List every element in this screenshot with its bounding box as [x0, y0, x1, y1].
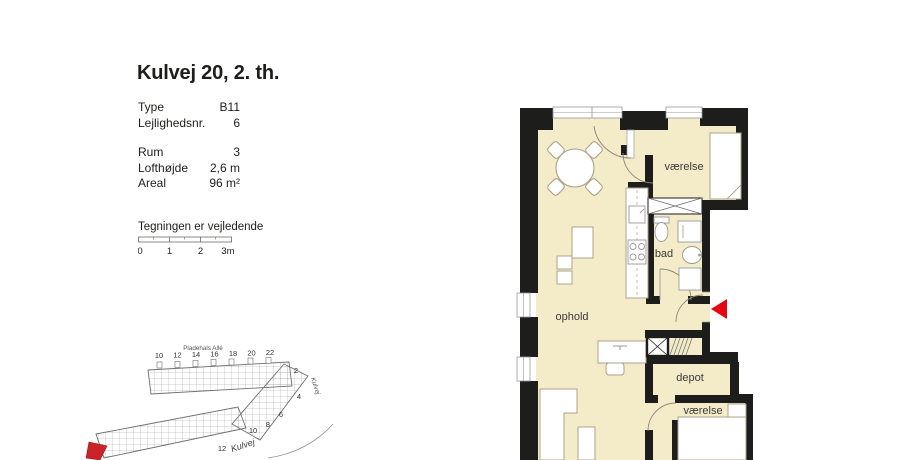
stool [557, 271, 572, 284]
room-label-bath: bad [655, 248, 673, 260]
page-title: Kulvej 20, 2. th. [137, 62, 279, 85]
apartment-details: Type B11 Lejlighedsnr. 6 Rum 3 Lofthøjde… [138, 100, 240, 192]
detail-label: Rum [138, 145, 163, 161]
house-number: 20 [247, 349, 255, 358]
wardrobe [648, 198, 702, 214]
street-label-kulvej-right: Kulvej [309, 377, 321, 397]
bedside-table [728, 404, 746, 417]
site-plan: Pladehals Allé Kulvej Kulvej 10 12 14 16… [85, 330, 337, 460]
detail-row-type: Type B11 [138, 100, 240, 116]
window [517, 357, 530, 381]
house-number: 22 [266, 348, 274, 357]
road-line [268, 424, 333, 458]
elevator [647, 337, 668, 356]
detail-value: 3 [233, 145, 240, 161]
disclaimer-text: Tegningen er vejledende [138, 221, 263, 233]
kitchen-sink [629, 206, 645, 223]
detail-label: Areal [138, 176, 166, 192]
entrance-arrow-icon [711, 299, 727, 319]
room-label-bedroom1: værelse [664, 161, 703, 173]
house-number: 16 [210, 350, 218, 359]
siteplan-house-numbers-top: 10 12 14 16 18 20 22 [155, 348, 274, 360]
window [666, 107, 702, 118]
scale-bar-body [139, 237, 232, 242]
detail-row-ceiling-height: Lofthøjde 2,6 m [138, 161, 240, 177]
toilet [654, 217, 669, 242]
scale-label-3m: 3m [221, 246, 234, 257]
bathroom-cabinet [678, 221, 701, 242]
house-number: 4 [297, 392, 301, 401]
floor-plan: værelse bad ophold depot værelse [515, 100, 760, 460]
washbasin [683, 247, 702, 264]
detail-label: Type [138, 100, 164, 116]
table-top [556, 149, 594, 187]
detail-row-apartment-number: Lejlighedsnr. 6 [138, 116, 240, 132]
house-number: 10 [249, 426, 257, 435]
detail-row-rooms: Rum 3 [138, 145, 240, 161]
kitchen-island [572, 227, 593, 258]
stool [557, 256, 572, 269]
window [553, 107, 622, 118]
detail-row-area: Areal 96 m² [138, 176, 240, 192]
detail-value: B11 [220, 100, 240, 116]
house-number: 2 [294, 366, 298, 375]
detail-value: 6 [233, 116, 240, 132]
house-number: 12 [218, 444, 226, 453]
bed-bedroom1 [710, 133, 741, 199]
room-label-bedroom2: værelse [683, 405, 722, 417]
room-label-living: ophold [555, 311, 588, 323]
detail-label: Lejlighedsnr. [138, 116, 205, 132]
street-label-kulvej-bottom: Kulvej [230, 437, 257, 454]
house-number: 8 [266, 420, 270, 429]
window [517, 293, 530, 317]
scale-label-2: 2 [198, 246, 203, 257]
desk-chair [606, 363, 624, 375]
shower [679, 268, 701, 290]
scale-label-0: 0 [138, 246, 143, 257]
house-number: 18 [229, 349, 237, 358]
coffee-table [578, 427, 595, 460]
floorplan-page: Kulvej 20, 2. th. Type B11 Lejlighedsnr.… [0, 0, 905, 460]
detail-value: 96 m² [209, 176, 240, 192]
room-label-storage: depot [676, 372, 704, 384]
spacer [138, 131, 240, 145]
house-number: 12 [173, 351, 181, 360]
scale-bar: 0 1 2 3m [138, 235, 248, 259]
detail-label: Lofthøjde [138, 161, 188, 177]
house-number: 6 [279, 410, 283, 419]
detail-value: 2,6 m [210, 161, 240, 177]
scale-label-1: 1 [167, 246, 172, 257]
house-number: 14 [192, 350, 200, 359]
stove [628, 240, 646, 264]
house-number: 10 [155, 351, 163, 360]
